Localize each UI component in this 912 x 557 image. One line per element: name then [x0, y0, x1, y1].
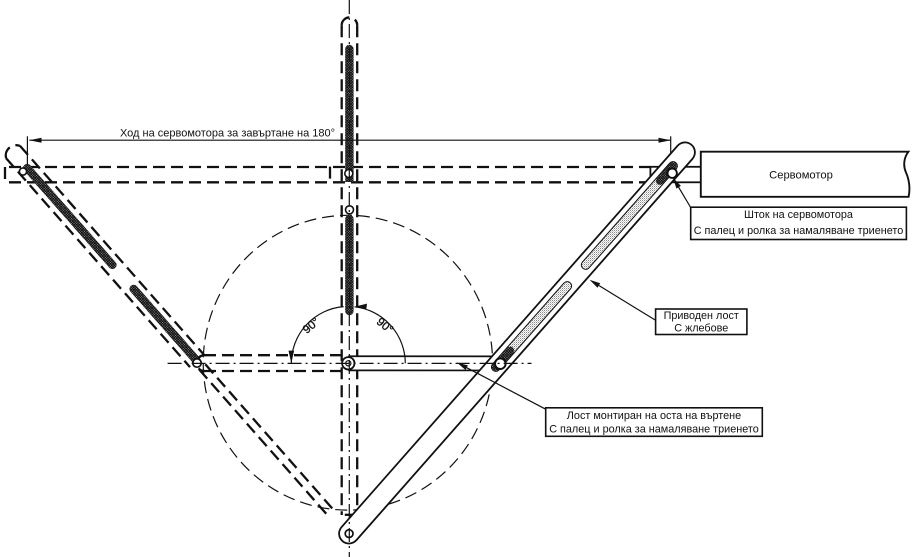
svg-text:Сервомотор: Сервомотор [769, 170, 833, 182]
svg-text:С жлебове: С жлебове [674, 322, 728, 334]
svg-text:С палец и ролка за намаляване: С палец и ролка за намаляване триенето [694, 225, 904, 237]
svg-text:Ход на сервомотора за завъртан: Ход на сервомотора за завъртане на 180° [120, 128, 335, 140]
svg-text:Лост монтиран на оста на върте: Лост монтиран на оста на въртене [567, 410, 741, 422]
svg-text:Шток на сервомотора: Шток на сервомотора [744, 209, 854, 221]
svg-text:Приводен лост: Приводен лост [664, 310, 739, 322]
svg-text:С палец и ролка за намаляване: С палец и ролка за намаляване триенето [549, 423, 759, 435]
